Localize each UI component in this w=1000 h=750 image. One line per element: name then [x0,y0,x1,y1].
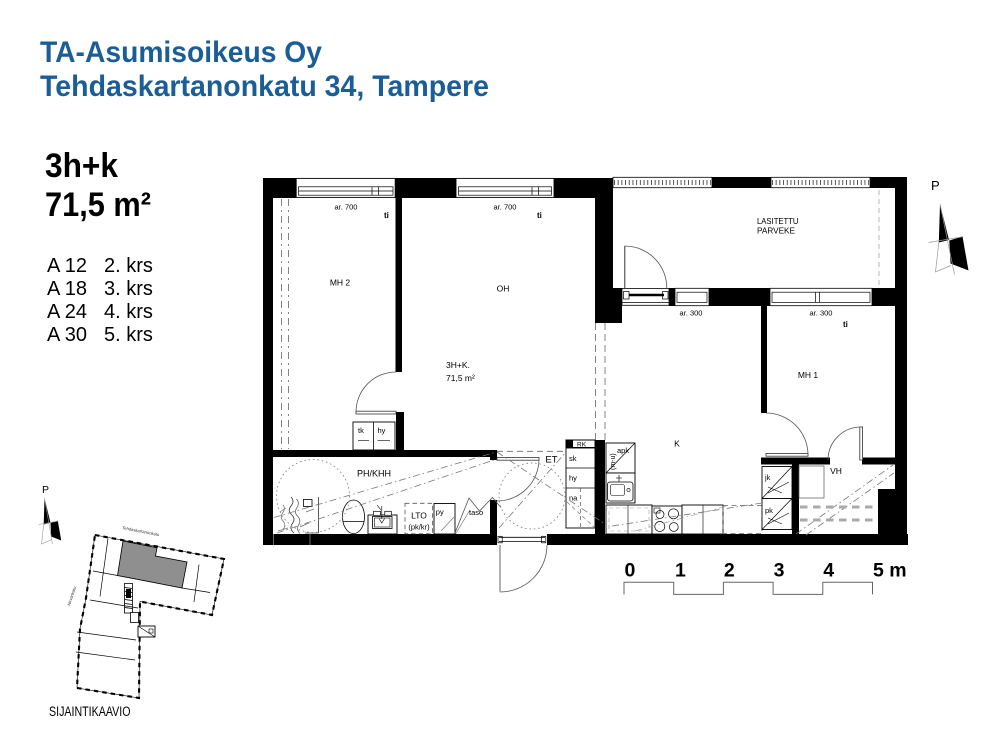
svg-text:TA-Asumisoikeus Oy: TA-Asumisoikeus Oy [40,36,322,69]
svg-text:A 24: A 24 [47,301,87,323]
svg-text:ar. 300: ar. 300 [810,309,833,318]
svg-text:3. krs: 3. krs [104,278,153,300]
svg-text:OH: OH [497,284,510,294]
svg-text:3H+K.: 3H+K. [446,360,470,370]
svg-text:ti: ti [843,320,848,329]
svg-text:ar. 700: ar. 700 [494,203,517,212]
svg-text:(m-u): (m-u) [610,453,617,470]
svg-text:3: 3 [774,560,785,582]
svg-text:2. krs: 2. krs [104,255,153,277]
svg-text:ET: ET [545,455,557,466]
svg-text:71,5 m²: 71,5 m² [45,186,151,224]
svg-text:pk: pk [765,506,773,515]
svg-text:RK: RK [577,441,587,448]
svg-text:MH 1: MH 1 [798,370,819,380]
svg-text:3h+k: 3h+k [45,147,118,185]
svg-text:2: 2 [724,560,735,582]
svg-text:LTO: LTO [411,511,427,521]
svg-text:sk: sk [569,454,577,463]
svg-text:hy: hy [378,426,386,435]
svg-text:A 30: A 30 [47,324,87,346]
svg-text:SIJAINTIKAAVIO: SIJAINTIKAAVIO [49,704,131,719]
svg-text:VH: VH [830,466,842,476]
svg-text:ti: ti [537,211,542,220]
svg-text:py: py [436,508,444,517]
svg-text:hy: hy [569,474,577,483]
svg-text:5. krs: 5. krs [104,324,153,346]
svg-text:MH 2: MH 2 [330,278,351,288]
svg-text:0: 0 [625,560,636,582]
svg-text:taso: taso [469,508,483,517]
svg-text:tk: tk [358,426,364,435]
svg-text:ar. 700: ar. 700 [335,203,358,212]
svg-text:LASITETTU: LASITETTU [757,216,799,226]
svg-text:5 m: 5 m [873,560,907,582]
svg-text:K: K [674,439,680,449]
svg-text:apk: apk [617,446,629,455]
svg-text:PH/KHH: PH/KHH [357,469,391,479]
svg-text:ti: ti [384,211,389,220]
svg-text:71,5 m²: 71,5 m² [446,373,475,383]
svg-text:1: 1 [675,560,686,582]
svg-text:4. krs: 4. krs [104,301,153,323]
svg-text:A 18: A 18 [47,278,87,300]
svg-text:ar. 300: ar. 300 [680,309,703,318]
svg-text:4: 4 [823,560,834,582]
svg-text:P: P [931,178,940,193]
svg-text:PARVEKE: PARVEKE [757,226,795,236]
svg-text:A 12: A 12 [47,255,87,277]
svg-text:(pk/kr): (pk/kr) [408,523,430,532]
svg-text:Tehdaskartanonkatu 34, Tampere: Tehdaskartanonkatu 34, Tampere [40,70,489,103]
svg-text:jk: jk [764,473,771,482]
svg-text:P: P [42,484,49,496]
